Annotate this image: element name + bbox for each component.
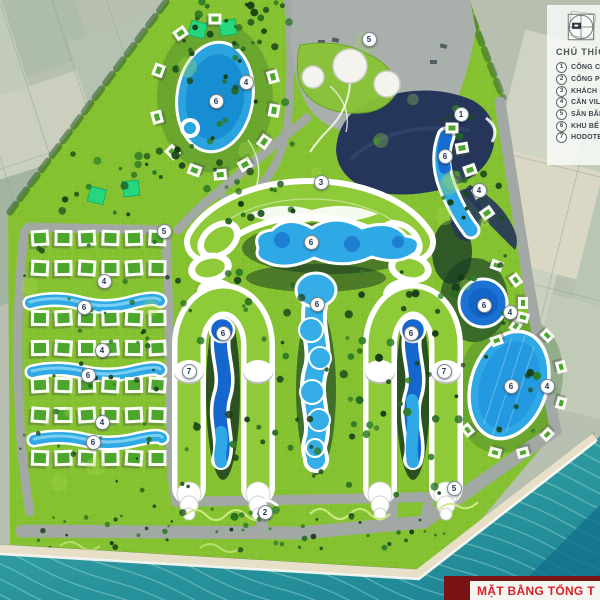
plan-marker-5: 5	[362, 32, 377, 47]
plan-marker-6: 6	[404, 326, 419, 341]
villa	[28, 406, 50, 426]
legend-item-label: CỔNG PH	[571, 76, 600, 83]
villa	[75, 259, 97, 279]
legend-item-number: 4	[556, 97, 567, 108]
site-plan-canvas	[0, 0, 600, 600]
canopy-structure	[374, 71, 400, 97]
plan-marker-6: 6	[304, 235, 319, 250]
plan-marker-6: 6	[310, 297, 325, 312]
title-banner: MẶT BẰNG TỔNG T	[444, 576, 600, 600]
legend-item-4: 4CĂN VILLA	[556, 97, 600, 109]
villa	[122, 230, 143, 249]
plan-marker-5: 5	[447, 481, 462, 496]
plan-marker-4: 4	[239, 75, 254, 90]
villa	[52, 260, 73, 279]
villa	[146, 450, 167, 469]
legend-heading: CHÚ THÍCH	[556, 47, 600, 57]
plan-marker-7: 7	[437, 364, 452, 379]
villa	[28, 310, 49, 329]
plan-marker-2: 2	[258, 505, 273, 520]
villa	[99, 230, 120, 249]
villa	[52, 310, 73, 330]
legend-item-label: CĂN VILLA	[571, 99, 600, 106]
villa	[52, 450, 73, 469]
legend-item-2: 2CỔNG PH	[556, 74, 600, 86]
legend-panel: CHÚ THÍCH 1CỔNG CH2CỔNG PH3KHÁCH SẠ4CĂN …	[547, 5, 600, 165]
resort-master-plan: 12344444445556666666666677 CHÚ THÍCH 1CỔ…	[0, 0, 600, 600]
villa	[146, 260, 167, 279]
villa	[122, 449, 144, 469]
plan-marker-4: 4	[95, 343, 110, 358]
plan-title: MẶT BẰNG TỔNG T	[477, 584, 595, 598]
plan-marker-6: 6	[77, 300, 92, 315]
villa	[122, 309, 143, 329]
jacuzzi-pool	[184, 122, 196, 134]
villa	[52, 230, 73, 249]
villa	[52, 377, 73, 396]
lagoon-pool	[257, 220, 419, 266]
villa	[122, 407, 143, 427]
villa	[98, 376, 119, 396]
legend-item-3: 3KHÁCH SẠ	[556, 85, 600, 97]
plan-marker-4: 4	[503, 305, 518, 320]
legend-item-1: 1CỔNG CH	[556, 62, 600, 74]
villa	[122, 340, 143, 359]
villa	[51, 339, 73, 359]
villa	[122, 377, 143, 396]
villa	[75, 406, 97, 426]
villa	[28, 340, 49, 359]
villa	[75, 230, 96, 250]
plan-marker-6: 6	[477, 298, 492, 313]
legend-item-number: 1	[556, 62, 567, 73]
villa	[28, 450, 49, 469]
plan-marker-4: 4	[97, 274, 112, 289]
canopy-structure	[302, 66, 324, 88]
villa	[145, 376, 167, 396]
plan-marker-6: 6	[209, 94, 224, 109]
villa	[99, 310, 120, 329]
legend-item-6: 6KHU BỂ BƠ	[556, 120, 600, 132]
villa	[76, 340, 97, 359]
legend-list: 1CỔNG CH2CỔNG PH3KHÁCH SẠ4CĂN VILLA5SÂN …	[556, 62, 600, 144]
legend-item-label: KHÁCH SẠ	[571, 88, 600, 95]
legend-item-number: 3	[556, 86, 567, 97]
plan-marker-4: 4	[540, 379, 555, 394]
legend-item-7: 7HODOTEL	[556, 132, 600, 144]
legend-item-number: 6	[556, 121, 567, 132]
legend-item-number: 5	[556, 109, 567, 120]
plan-marker-6: 6	[81, 368, 96, 383]
plan-marker-6: 6	[438, 149, 453, 164]
villa	[122, 259, 144, 279]
villa	[28, 377, 49, 397]
plan-marker-4: 4	[95, 415, 110, 430]
plan-marker-3: 3	[314, 175, 329, 190]
plan-marker-1: 1	[454, 107, 469, 122]
plan-marker-5: 5	[157, 224, 172, 239]
legend-item-label: SÂN BÃI, Đ	[571, 111, 600, 118]
legend-item-label: CỔNG CH	[571, 64, 600, 71]
canopy-structure	[333, 49, 367, 83]
plan-marker-6: 6	[216, 326, 231, 341]
legend-item-number: 7	[556, 132, 567, 143]
legend-item-label: HODOTEL	[571, 134, 600, 141]
legend-item-label: KHU BỂ BƠ	[571, 123, 600, 130]
legend-item-number: 2	[556, 74, 567, 85]
plan-marker-6: 6	[504, 379, 519, 394]
villa	[146, 340, 167, 360]
architect-logo	[564, 10, 598, 44]
villa	[146, 407, 167, 426]
legend-item-5: 5SÂN BÃI, Đ	[556, 109, 600, 121]
title-banner-band: MẶT BẰNG TỔNG T	[470, 581, 600, 600]
plan-marker-7: 7	[182, 364, 197, 379]
plan-marker-6: 6	[86, 435, 101, 450]
villa	[452, 141, 470, 157]
plan-marker-4: 4	[472, 183, 487, 198]
villa	[28, 259, 49, 279]
